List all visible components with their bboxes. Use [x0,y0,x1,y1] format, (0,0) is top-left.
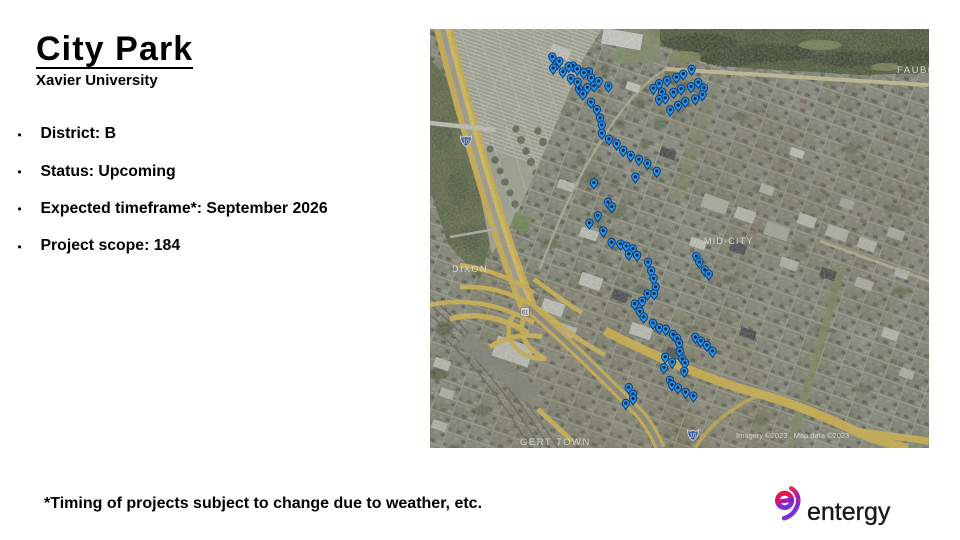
svg-text:entergy: entergy [807,498,891,526]
